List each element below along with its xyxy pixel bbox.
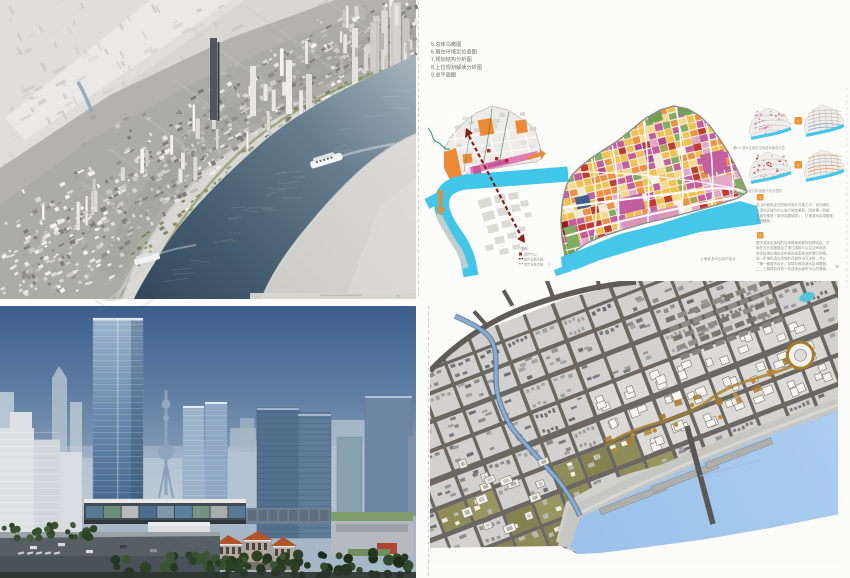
svg-text:图例: 图例	[521, 246, 528, 251]
svg-text:7.规划结构分析图: 7.规划结构分析图	[431, 55, 472, 63]
svg-text:2: 2	[759, 234, 761, 238]
svg-text:上海某滨水区城市设计: 上海某滨水区城市设计	[700, 256, 736, 261]
svg-text:图5-3 滨水区开发强度分布示意图: 图5-3 滨水区开发强度分布示意图	[733, 188, 782, 193]
svg-text:城市发展次轴: 城市发展次轴	[524, 262, 543, 267]
svg-text:结合轨道交通站点布局形成多层次的慢行网络，: 结合轨道交通站点布局形成多层次的慢行网络，	[756, 250, 830, 255]
svg-text:9.总平面图: 9.总平面图	[431, 70, 456, 78]
svg-text:进一步强化滨水岸线的开放性与可达性，并以: 进一步强化滨水岸线的开放性与可达性，并以	[756, 256, 826, 261]
svg-text:二、三期项目将统一形成滨水城市中心的格局。: 二、三期项目将统一形成滨水城市中心的格局。	[756, 266, 830, 271]
svg-text:8.上位规划解读分析图: 8.上位规划解读分析图	[431, 63, 482, 71]
svg-text:1: 1	[759, 196, 761, 200]
svg-text:6.居住环境定位意图: 6.居住环境定位意图	[431, 48, 477, 56]
svg-text:风貌格局。: 风貌格局。	[756, 218, 774, 223]
svg-text:案在设计层面整合了滨江绿带与公共空间系统，: 案在设计层面整合了滨江绿带与公共空间系统，	[756, 245, 830, 250]
svg-text:在山州城市定位的城市设计方案之中，设计团队: 在山州城市定位的城市设计方案之中，设计团队	[756, 202, 830, 207]
svg-text:城市发展主轴: 城市发展主轴	[524, 257, 543, 262]
svg-text:「第一届城市设计」為契机推动滨水区域更新，: 「第一届城市设计」為契机推动滨水区域更新，	[756, 261, 830, 266]
svg-text:将逐步推进「城市发展轴带」，打造滨水区域整体: 将逐步推进「城市发展轴带」，打造滨水区域整体	[756, 213, 833, 218]
svg-text:图5-2 滨水区城市空间结构演变示意: 图5-2 滨水区城市空间结构演变示意	[733, 145, 786, 150]
svg-text:5.总体鸟瞰图: 5.总体鸟瞰图	[431, 40, 461, 48]
svg-text:基于滨水区独特的空间格局和城市肌理特征，方: 基于滨水区独特的空间格局和城市肌理特征，方	[756, 240, 830, 245]
svg-text:以滨水区域为中心进行城市更新，同时第一阶段: 以滨水区域为中心进行城市更新，同时第一阶段	[756, 207, 830, 212]
svg-text:城市中心: 城市中心	[524, 252, 538, 257]
